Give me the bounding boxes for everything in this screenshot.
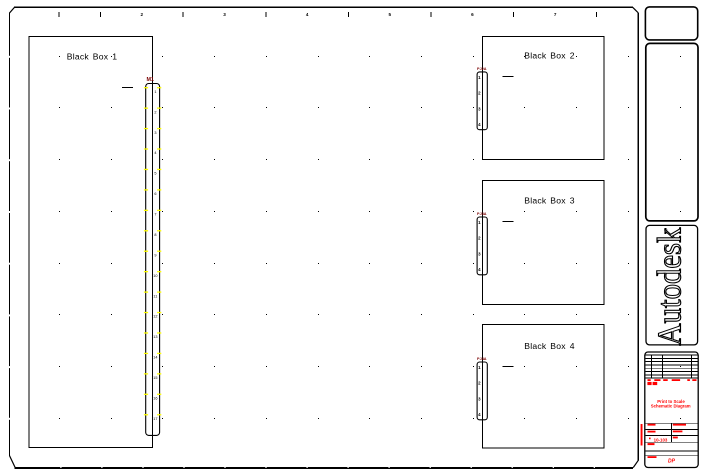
- svg-text:9: 9: [154, 253, 156, 257]
- svg-text:1: 1: [154, 90, 156, 94]
- svg-text:7: 7: [554, 12, 557, 17]
- svg-text:8: 8: [154, 233, 156, 237]
- svg-text:PJ4A: PJ4A: [477, 357, 487, 361]
- svg-text:PJ2A: PJ2A: [477, 67, 487, 71]
- svg-text:Autodesk: Autodesk: [652, 228, 689, 346]
- svg-text:Black Box 1: Black Box 1: [67, 52, 117, 62]
- svg-text:2: 2: [154, 110, 156, 114]
- svg-text:15: 15: [153, 376, 157, 380]
- svg-text:Schematic Diagram: Schematic Diagram: [651, 403, 691, 408]
- svg-text:Black Box 2: Black Box 2: [524, 51, 574, 61]
- svg-text:Black Box 3: Black Box 3: [524, 195, 574, 205]
- svg-text:16: 16: [153, 397, 157, 401]
- svg-text:PJ3A: PJ3A: [477, 212, 487, 216]
- svg-text:6: 6: [471, 12, 474, 17]
- svg-text:17: 17: [153, 417, 157, 421]
- svg-text:10-103: 10-103: [654, 438, 668, 443]
- svg-text:4: 4: [154, 151, 156, 155]
- svg-text:4: 4: [306, 12, 309, 17]
- svg-text:2: 2: [141, 12, 144, 17]
- svg-text:10: 10: [153, 274, 157, 278]
- svg-text:3: 3: [154, 131, 156, 135]
- svg-text:13: 13: [153, 335, 157, 339]
- svg-text:12: 12: [153, 315, 157, 319]
- svg-text:DP: DP: [668, 459, 676, 465]
- svg-text:5: 5: [154, 172, 156, 176]
- svg-text:Black Box 4: Black Box 4: [524, 341, 574, 351]
- svg-text:14: 14: [153, 356, 157, 360]
- svg-text:11: 11: [153, 294, 157, 298]
- svg-text:6: 6: [154, 192, 156, 196]
- svg-text:3: 3: [223, 12, 226, 17]
- svg-text:7: 7: [154, 213, 156, 217]
- svg-text:M1: M1: [146, 77, 154, 83]
- svg-text:5: 5: [389, 12, 392, 17]
